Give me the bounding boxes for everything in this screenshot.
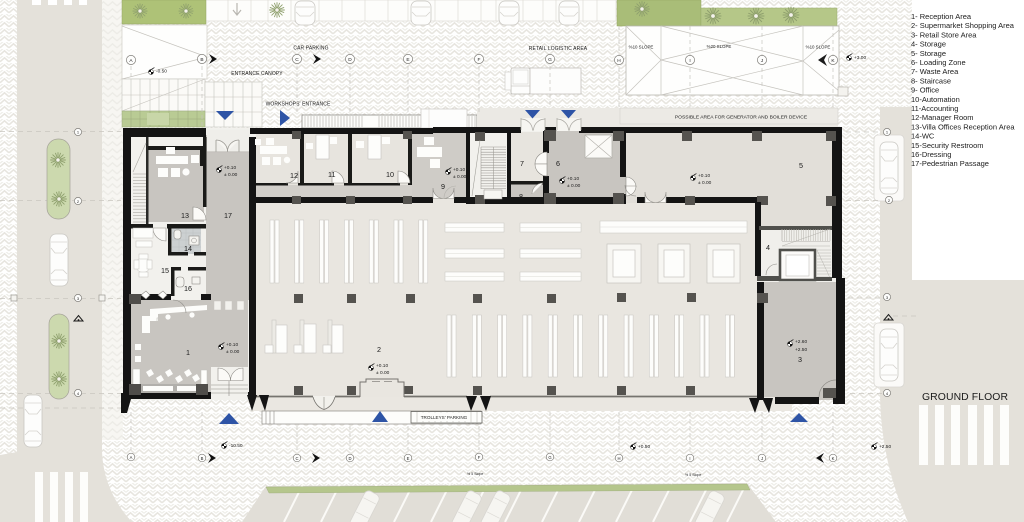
- svg-text:8: 8: [519, 192, 523, 201]
- svg-text:E: E: [406, 57, 409, 63]
- svg-text:10-Automation: 10-Automation: [911, 95, 960, 104]
- svg-text:ENTRANCE CANOPY: ENTRANCE CANOPY: [231, 71, 283, 77]
- svg-text:8- Staircase: 8- Staircase: [911, 76, 951, 85]
- svg-text:%10 SLOPE: %10 SLOPE: [629, 45, 654, 50]
- svg-text:± 0.00: ± 0.00: [567, 183, 581, 189]
- svg-text:1: 1: [186, 348, 190, 357]
- svg-text:14-WC: 14-WC: [911, 132, 935, 141]
- svg-text:17: 17: [224, 211, 232, 220]
- svg-text:CAR PARKING: CAR PARKING: [293, 46, 328, 52]
- svg-text:C: C: [295, 456, 298, 461]
- svg-text:1- Reception Area: 1- Reception Area: [911, 12, 972, 21]
- svg-text:H: H: [617, 456, 620, 461]
- svg-text:C: C: [295, 57, 299, 63]
- svg-text:15: 15: [161, 266, 169, 275]
- svg-text:± 0.00: ± 0.00: [453, 174, 467, 180]
- svg-text:± 0.00: ± 0.00: [226, 349, 240, 355]
- svg-text:7- Waste Area: 7- Waste Area: [911, 67, 959, 76]
- svg-text:+0.10: +0.10: [453, 167, 465, 173]
- svg-text:GROUND FLOOR: GROUND FLOOR: [922, 392, 1008, 403]
- svg-text:G: G: [548, 57, 552, 63]
- svg-text:+2.60: +2.60: [795, 339, 807, 345]
- svg-text:+3.00: +3.00: [854, 55, 866, 61]
- svg-text:± 0.00: ± 0.00: [376, 370, 390, 376]
- svg-text:10: 10: [386, 170, 394, 179]
- svg-text:+0.50: +0.50: [638, 444, 650, 450]
- svg-text:9: 9: [441, 182, 445, 191]
- svg-text:WORKSHOPS' ENTRANCE: WORKSHOPS' ENTRANCE: [266, 102, 331, 108]
- svg-text:14: 14: [184, 244, 192, 253]
- svg-text:2: 2: [377, 345, 381, 354]
- svg-text:J: J: [761, 456, 763, 461]
- svg-text:I: I: [689, 58, 690, 64]
- svg-text:%10 SLOPE: %10 SLOPE: [806, 45, 831, 50]
- svg-text:D: D: [348, 456, 351, 461]
- svg-text:6- Loading Zone: 6- Loading Zone: [911, 58, 966, 67]
- svg-text:3: 3: [798, 355, 802, 364]
- svg-text:+0.10: +0.10: [698, 173, 710, 179]
- svg-text:9- Office: 9- Office: [911, 86, 939, 95]
- svg-text:16: 16: [184, 284, 192, 293]
- svg-text:15-Security Restroom: 15-Security Restroom: [911, 141, 984, 150]
- svg-text:% 5 Slope: % 5 Slope: [467, 472, 483, 476]
- svg-text:+0.10: +0.10: [226, 342, 238, 348]
- svg-text:G: G: [548, 455, 551, 460]
- svg-text:± 0.00: ± 0.00: [698, 180, 712, 186]
- svg-text:5- Storage: 5- Storage: [911, 49, 946, 58]
- svg-text:K: K: [832, 456, 835, 461]
- svg-text:+0.10: +0.10: [376, 363, 388, 369]
- svg-text:2- Supermarket Shopping Area: 2- Supermarket Shopping Area: [911, 21, 1015, 30]
- svg-text:12-Manager Room: 12-Manager Room: [911, 113, 974, 122]
- svg-text:17-Pedestrian Passage: 17-Pedestrian Passage: [911, 159, 989, 168]
- svg-text:POSSIBLE AREA FOR GENERATOR AN: POSSIBLE AREA FOR GENERATOR AND BOILER D…: [675, 114, 808, 120]
- svg-text:11: 11: [328, 170, 335, 179]
- svg-text:6: 6: [556, 159, 560, 168]
- svg-text:11-Accounting: 11-Accounting: [911, 104, 958, 113]
- svg-text:± 0.00: ± 0.00: [224, 172, 238, 178]
- svg-text:13: 13: [181, 211, 189, 220]
- svg-text:I: I: [689, 456, 690, 461]
- svg-text:H: H: [617, 58, 621, 64]
- svg-text:E: E: [407, 456, 410, 461]
- svg-text:3- Retail Store Area: 3- Retail Store Area: [911, 30, 977, 39]
- svg-text:%20 SLOPE: %20 SLOPE: [707, 44, 732, 49]
- svg-text:+2.50: +2.50: [879, 444, 891, 450]
- svg-text:F: F: [478, 57, 481, 63]
- svg-text:4- Storage: 4- Storage: [911, 40, 946, 49]
- svg-text:7: 7: [520, 159, 524, 168]
- svg-text:F: F: [478, 455, 481, 460]
- svg-text:TROLLEYS' PARKING: TROLLEYS' PARKING: [421, 415, 468, 420]
- svg-text:-0.50: -0.50: [156, 69, 167, 75]
- svg-text:D: D: [348, 57, 352, 63]
- svg-text:+2.50: +2.50: [795, 347, 807, 353]
- svg-text:5: 5: [799, 161, 803, 170]
- svg-text:4: 4: [766, 243, 770, 252]
- svg-text:13-Villa Offices Reception Are: 13-Villa Offices Reception Area: [911, 122, 1015, 131]
- svg-text:% 5 Slope: % 5 Slope: [685, 473, 701, 477]
- svg-text:+0.10: +0.10: [567, 176, 579, 182]
- svg-text:B: B: [200, 57, 203, 63]
- svg-text:-10.50: -10.50: [229, 443, 243, 449]
- svg-text:RETAIL LOGISTIC AREA: RETAIL LOGISTIC AREA: [529, 46, 588, 52]
- svg-text:+0.10: +0.10: [224, 165, 236, 171]
- svg-text:A: A: [130, 455, 133, 460]
- svg-text:12: 12: [290, 171, 298, 180]
- svg-text:16-Dressing: 16-Dressing: [911, 150, 951, 159]
- svg-text:B: B: [201, 456, 204, 461]
